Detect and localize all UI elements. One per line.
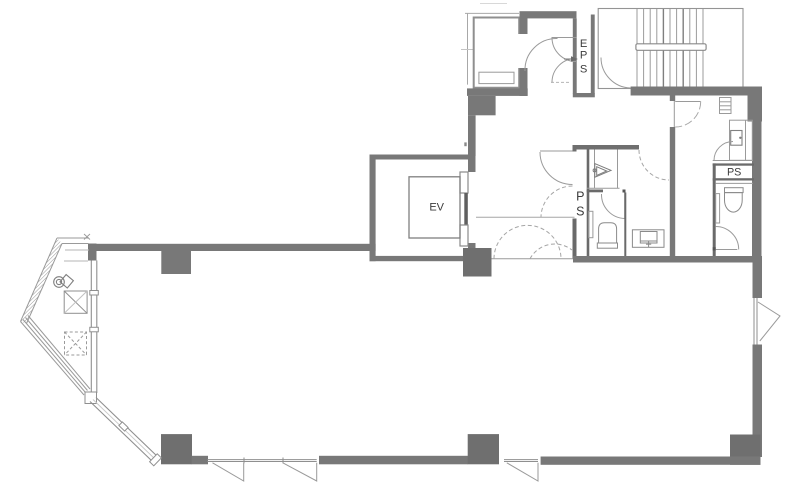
svg-text:PS: PS: [727, 167, 741, 179]
svg-text:S: S: [576, 204, 584, 218]
svg-text:S: S: [580, 64, 587, 76]
svg-text:EV: EV: [429, 202, 444, 214]
svg-text:P: P: [580, 49, 587, 61]
svg-text:E: E: [580, 38, 587, 50]
svg-text:P: P: [576, 189, 584, 203]
